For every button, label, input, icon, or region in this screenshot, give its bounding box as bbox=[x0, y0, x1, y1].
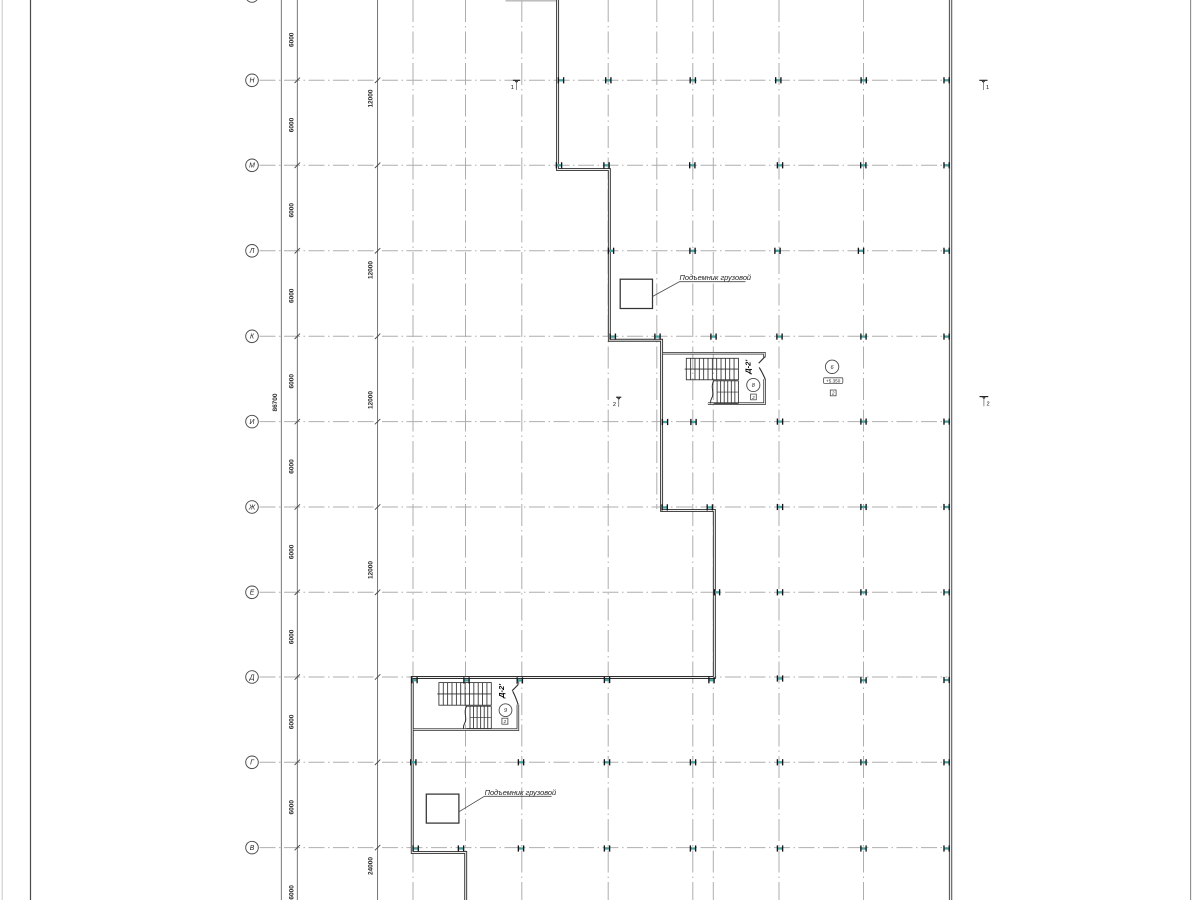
svg-text:М: М bbox=[249, 163, 255, 170]
svg-text:2: 2 bbox=[751, 395, 755, 400]
svg-text:Д-2': Д-2' bbox=[497, 683, 506, 699]
svg-text:И: И bbox=[250, 419, 255, 426]
svg-text:Д: Д bbox=[249, 674, 255, 681]
svg-text:6000: 6000 bbox=[289, 714, 296, 729]
svg-text:2: 2 bbox=[831, 391, 835, 396]
svg-text:6000: 6000 bbox=[289, 32, 296, 47]
svg-text:24000: 24000 bbox=[368, 857, 375, 875]
svg-text:Н: Н bbox=[250, 78, 255, 85]
svg-text:6000: 6000 bbox=[289, 374, 296, 389]
svg-text:6000: 6000 bbox=[289, 117, 296, 132]
svg-text:6000: 6000 bbox=[289, 885, 296, 900]
svg-text:2: 2 bbox=[613, 402, 616, 408]
svg-text:Подъемник грузовой: Подъемник грузовой bbox=[680, 273, 752, 282]
svg-text:Е: Е bbox=[250, 590, 255, 597]
svg-text:1: 1 bbox=[986, 85, 989, 91]
svg-text:86700: 86700 bbox=[272, 393, 279, 411]
svg-text:12000: 12000 bbox=[368, 561, 375, 579]
svg-text:+5.350: +5.350 bbox=[826, 378, 841, 383]
svg-text:12000: 12000 bbox=[368, 391, 375, 409]
svg-text:2: 2 bbox=[503, 719, 507, 724]
svg-text:Подъемник грузовой: Подъемник грузовой bbox=[485, 788, 557, 797]
svg-text:12000: 12000 bbox=[368, 261, 375, 279]
svg-text:6000: 6000 bbox=[289, 288, 296, 303]
svg-text:Ж: Ж bbox=[248, 504, 256, 511]
svg-text:6000: 6000 bbox=[289, 459, 296, 474]
svg-text:6000: 6000 bbox=[289, 629, 296, 644]
svg-text:9: 9 bbox=[504, 708, 507, 714]
svg-text:6000: 6000 bbox=[289, 203, 296, 218]
svg-text:6000: 6000 bbox=[289, 544, 296, 559]
svg-text:12000: 12000 bbox=[368, 89, 375, 107]
svg-text:6000: 6000 bbox=[289, 800, 296, 815]
svg-text:Д-2': Д-2' bbox=[744, 359, 753, 375]
svg-text:2: 2 bbox=[987, 401, 990, 407]
svg-text:1: 1 bbox=[511, 85, 514, 91]
svg-text:В: В bbox=[250, 845, 255, 852]
svg-text:Л: Л bbox=[249, 248, 255, 255]
